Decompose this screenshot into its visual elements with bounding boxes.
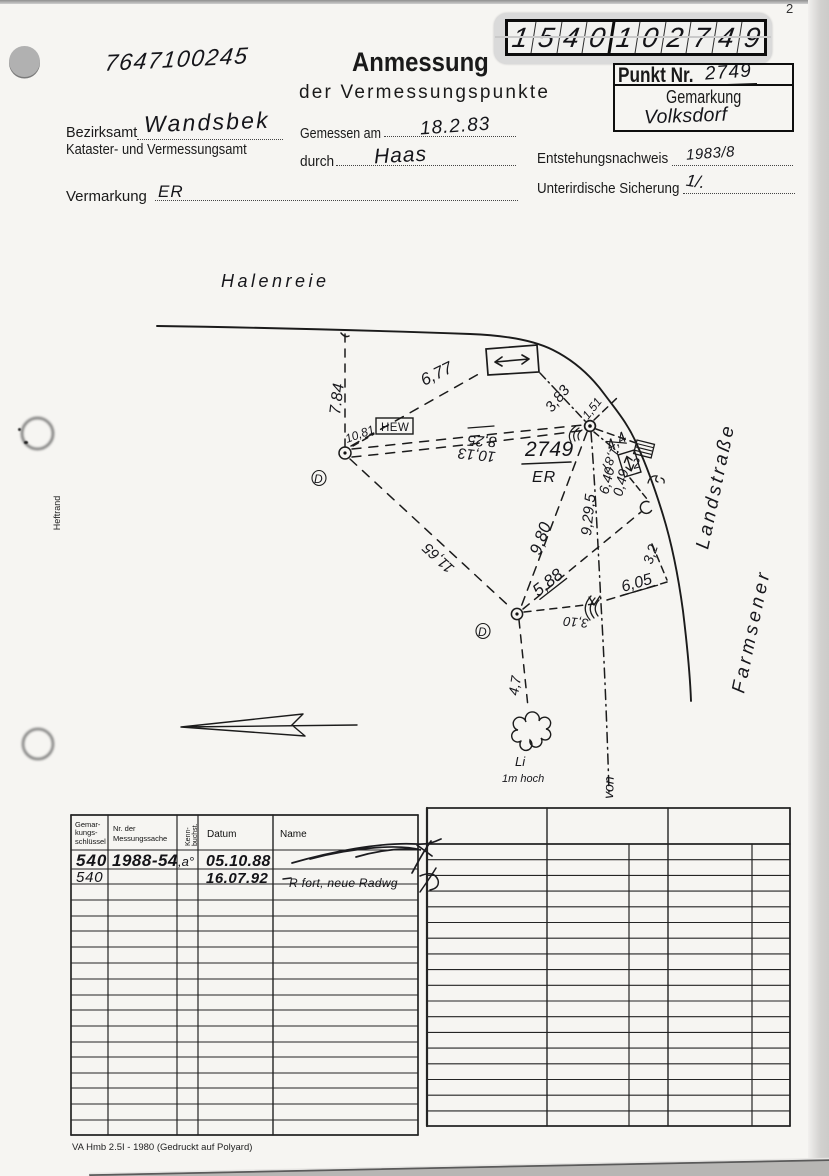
svg-text:540: 540 [76, 869, 103, 886]
svg-text:3,2: 3,2 [640, 542, 661, 566]
svg-text:schlüssel: schlüssel [75, 837, 106, 846]
svg-text:6,77: 6,77 [417, 358, 456, 390]
svg-text:HEW: HEW [381, 422, 409, 434]
svg-text:Halenreie: Halenreie [221, 271, 330, 291]
svg-text:9,29,5: 9,29,5 [578, 493, 599, 537]
svg-text:16.07.92: 16.07.92 [206, 870, 269, 887]
svg-text:Name: Name [280, 829, 307, 840]
svg-text:1988-54: 1988-54 [112, 851, 178, 870]
svg-text:1,51: 1,51 [579, 395, 604, 422]
svg-text:kungs-: kungs- [75, 828, 98, 837]
svg-text:buchst.: buchst. [192, 823, 199, 846]
svg-text:3,10: 3,10 [562, 614, 589, 631]
svg-text:10,81: 10,81 [343, 422, 376, 445]
svg-text:Landstraße: Landstraße [692, 421, 739, 551]
svg-text:Nr. der: Nr. der [113, 824, 136, 833]
svg-text:,a°: ,a° [178, 854, 194, 869]
svg-text:9,80: 9,80 [526, 519, 555, 557]
svg-text:1m hoch: 1m hoch [502, 773, 544, 785]
svg-text:R fort, neue Radwg: R fort, neue Radwg [289, 876, 398, 890]
svg-text:11,65: 11,65 [419, 539, 458, 577]
svg-text:Messungssache: Messungssache [113, 834, 167, 843]
svg-text:2749: 2749 [524, 438, 574, 461]
svg-text:540: 540 [76, 851, 107, 870]
svg-text:ER: ER [532, 469, 556, 486]
svg-text:05.10.88: 05.10.88 [206, 853, 271, 870]
svg-text:Farmsener: Farmsener [728, 567, 775, 695]
svg-text:3,83: 3,83 [542, 382, 574, 416]
svg-text:von: von [600, 776, 617, 799]
svg-text:6,05: 6,05 [619, 571, 654, 596]
svg-text:4,7: 4,7 [505, 674, 524, 697]
svg-text:Li: Li [515, 754, 526, 769]
svg-text:Kenn-: Kenn- [185, 827, 192, 846]
svg-text:Datum: Datum [207, 829, 236, 840]
